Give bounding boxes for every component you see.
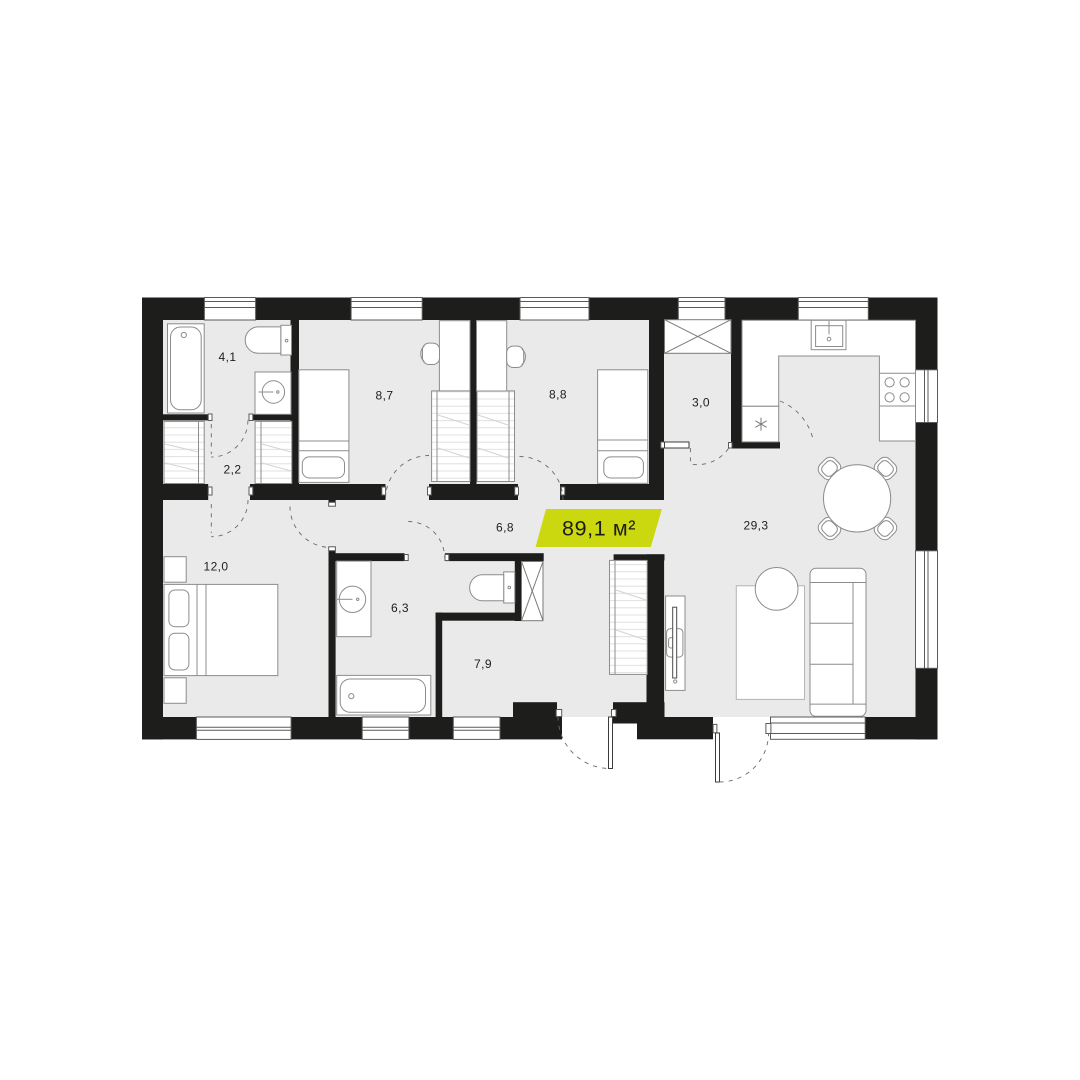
svg-text:12,0: 12,0 (204, 560, 229, 574)
svg-text:8,7: 8,7 (376, 389, 394, 403)
svg-text:2,2: 2,2 (224, 463, 242, 477)
svg-text:29,3: 29,3 (744, 519, 769, 533)
svg-text:6,8: 6,8 (496, 521, 514, 535)
svg-text:89,1 м²: 89,1 м² (562, 517, 636, 541)
svg-text:4,1: 4,1 (219, 350, 237, 364)
svg-text:8,8: 8,8 (549, 388, 567, 402)
svg-text:3,0: 3,0 (692, 396, 710, 410)
svg-text:6,3: 6,3 (391, 601, 409, 615)
svg-text:7,9: 7,9 (474, 657, 492, 671)
